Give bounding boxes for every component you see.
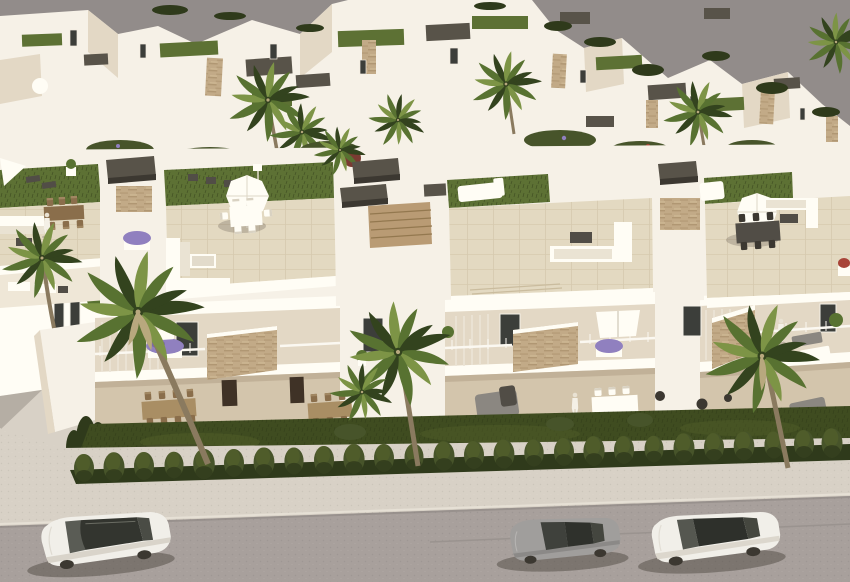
stairwell [368, 202, 432, 248]
roof [565, 520, 594, 546]
daybed [699, 181, 725, 201]
flower-box [123, 231, 151, 245]
balcony-parasol [596, 310, 640, 338]
small-parasol [32, 78, 48, 94]
rooftop-unit-b [164, 162, 336, 300]
dining-table [229, 205, 262, 227]
door-frame [222, 380, 238, 407]
door-frame [290, 377, 305, 403]
render-canvas [0, 0, 850, 582]
architectural-render [0, 0, 850, 582]
dining-table [44, 205, 85, 221]
red-flower-pot [838, 258, 850, 268]
stair-tower-3 [654, 150, 704, 302]
